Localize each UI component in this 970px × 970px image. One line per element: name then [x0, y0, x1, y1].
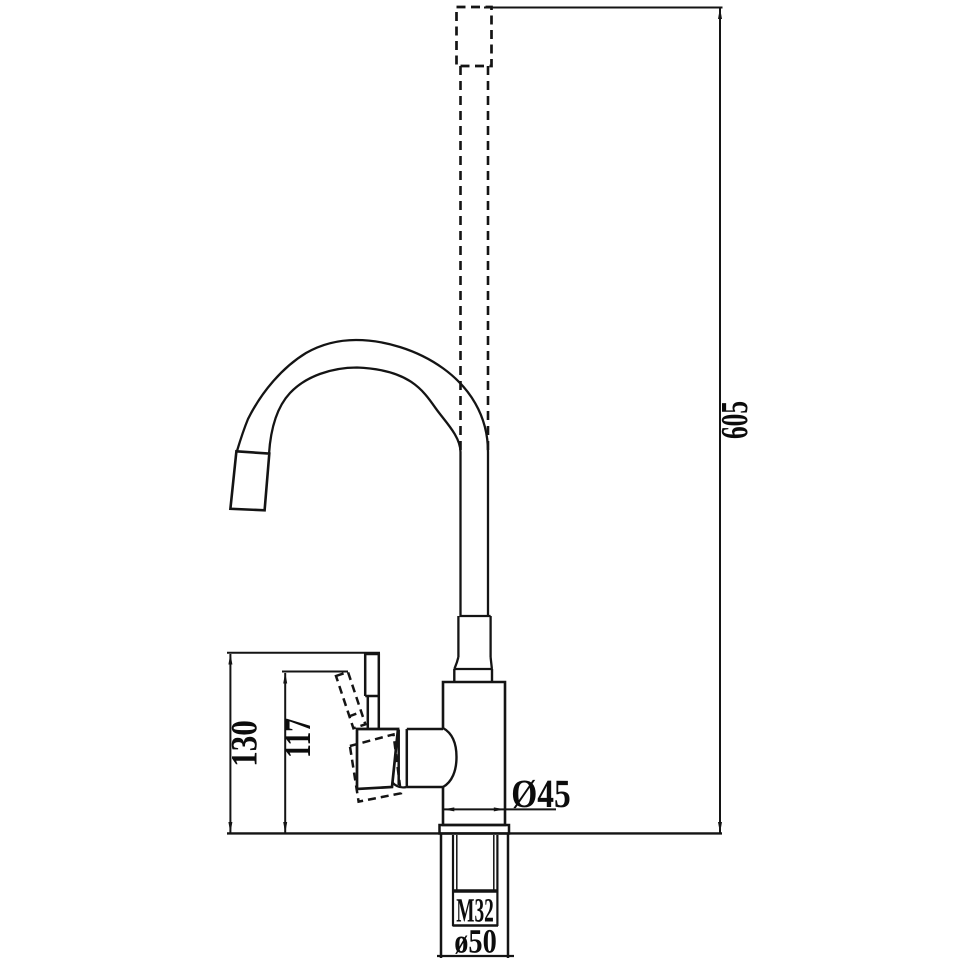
svg-text:Ø45: Ø45 [511, 771, 571, 816]
svg-text:ø50: ø50 [454, 923, 497, 960]
svg-text:117: 117 [278, 718, 319, 758]
svg-text:605: 605 [714, 401, 756, 439]
svg-text:130: 130 [225, 720, 266, 767]
